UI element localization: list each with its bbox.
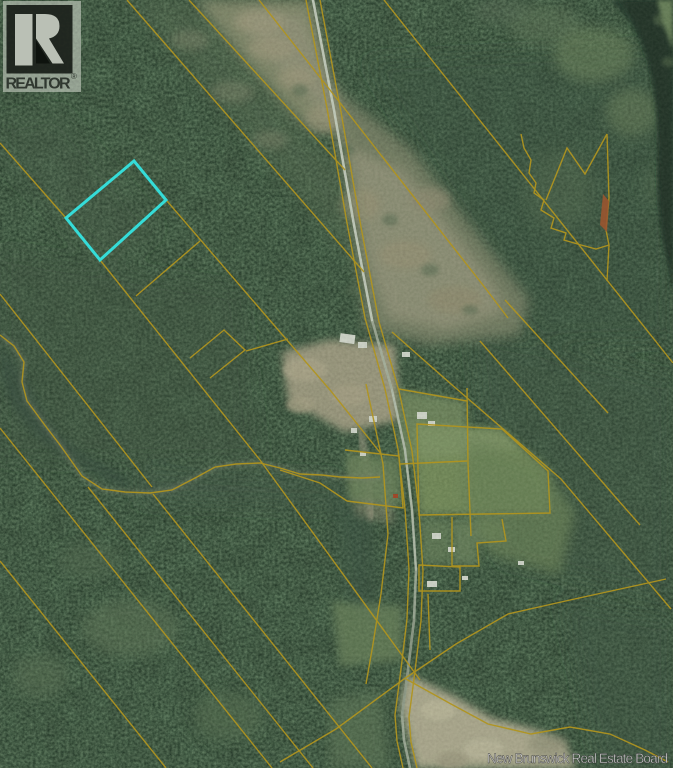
svg-text:REALTOR: REALTOR (6, 76, 71, 93)
svg-text:®: ® (71, 72, 77, 81)
svg-text:New Brunswick Real Estate Boar: New Brunswick Real Estate Board (487, 751, 668, 766)
